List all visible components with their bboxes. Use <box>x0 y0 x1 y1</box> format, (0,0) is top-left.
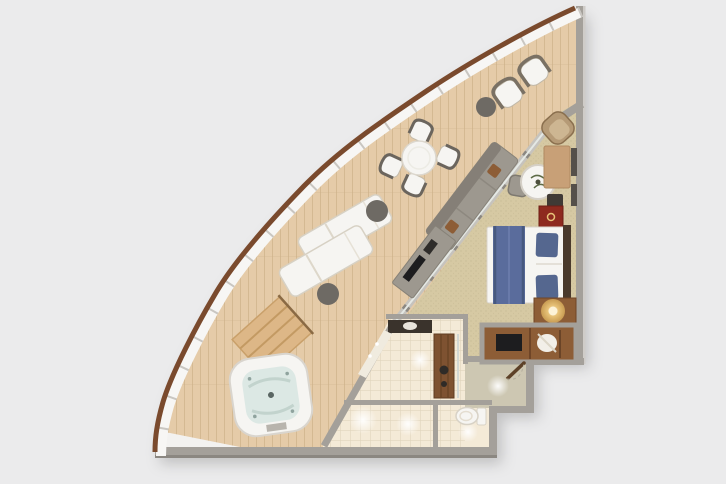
bath-mid-wall <box>344 400 492 405</box>
right-wall <box>576 6 584 364</box>
headboard <box>563 225 571 305</box>
minibar <box>539 206 563 228</box>
wardrobe-unit <box>482 325 576 362</box>
small-side-table <box>476 97 496 117</box>
pillow <box>536 233 559 258</box>
floor-plan-rendering <box>0 0 726 484</box>
bottom-wall-shade <box>155 455 497 458</box>
pillow <box>536 275 559 300</box>
floor-light <box>487 375 509 397</box>
shower-control <box>441 381 447 387</box>
floor-light <box>349 406 377 434</box>
dining-table <box>402 141 436 175</box>
wall-art <box>571 184 577 206</box>
floor-light <box>410 350 430 370</box>
wc-divider-wall <box>433 402 438 450</box>
wardrobe-tv <box>496 334 522 351</box>
right-wall-highlight <box>583 6 586 364</box>
bed <box>487 225 571 305</box>
wc-right-wall <box>489 406 497 452</box>
toilet <box>456 408 486 426</box>
nightstand <box>534 298 576 325</box>
bath-top-wall <box>386 314 468 319</box>
bedside-lamp <box>549 307 558 316</box>
floor-light <box>396 412 420 436</box>
wall-art <box>571 148 577 176</box>
lounger-side-table <box>317 283 339 305</box>
hot-tub <box>227 351 315 439</box>
shower-panel <box>434 334 458 398</box>
lounger-side-table <box>366 200 388 222</box>
shower-head <box>440 366 449 375</box>
hall-right-wall <box>526 358 534 412</box>
sink <box>403 322 417 330</box>
luggage-bench <box>547 194 563 207</box>
